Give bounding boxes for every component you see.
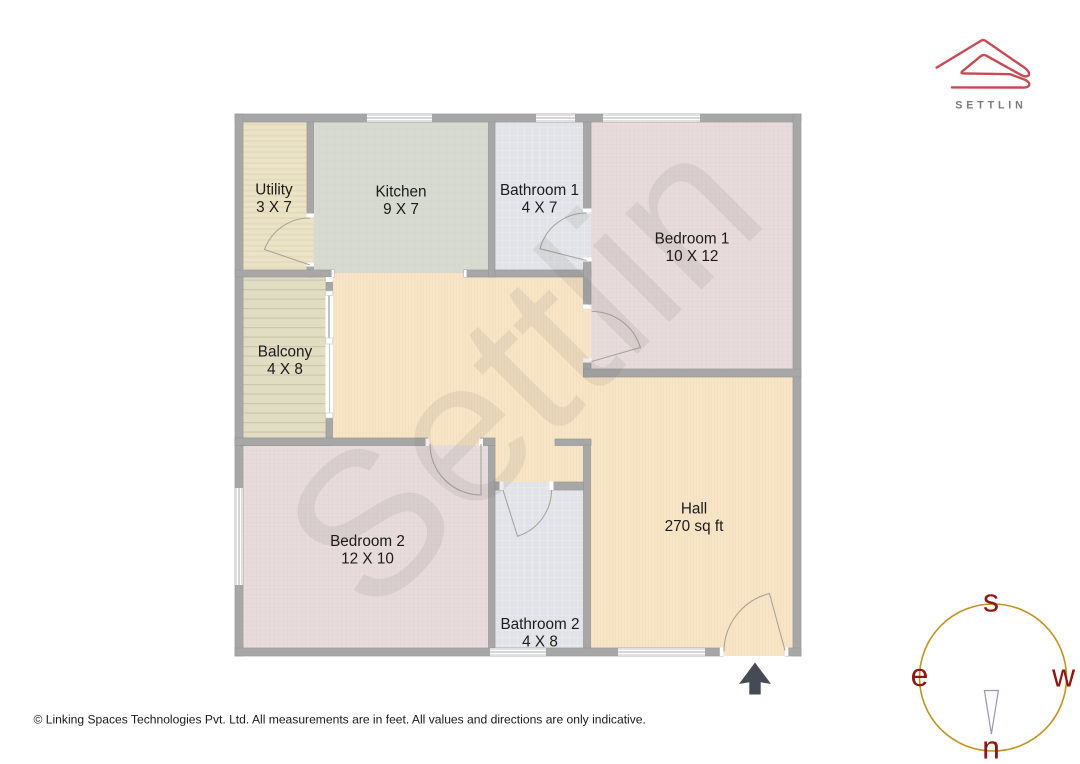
- svg-text:e: e: [911, 657, 929, 693]
- svg-text:Bedroom 110 X 12: Bedroom 110 X 12: [655, 231, 730, 266]
- svg-text:Utility3 X 7: Utility3 X 7: [255, 182, 293, 217]
- svg-text:© Linking Spaces Technologies: © Linking Spaces Technologies Pvt. Ltd. …: [34, 713, 646, 727]
- svg-text:Bedroom 212 X 10: Bedroom 212 X 10: [330, 533, 405, 568]
- svg-text:s: s: [983, 583, 999, 619]
- svg-text:SETTLIN: SETTLIN: [955, 100, 1026, 112]
- svg-text:n: n: [982, 730, 1000, 764]
- svg-text:w: w: [1051, 658, 1076, 694]
